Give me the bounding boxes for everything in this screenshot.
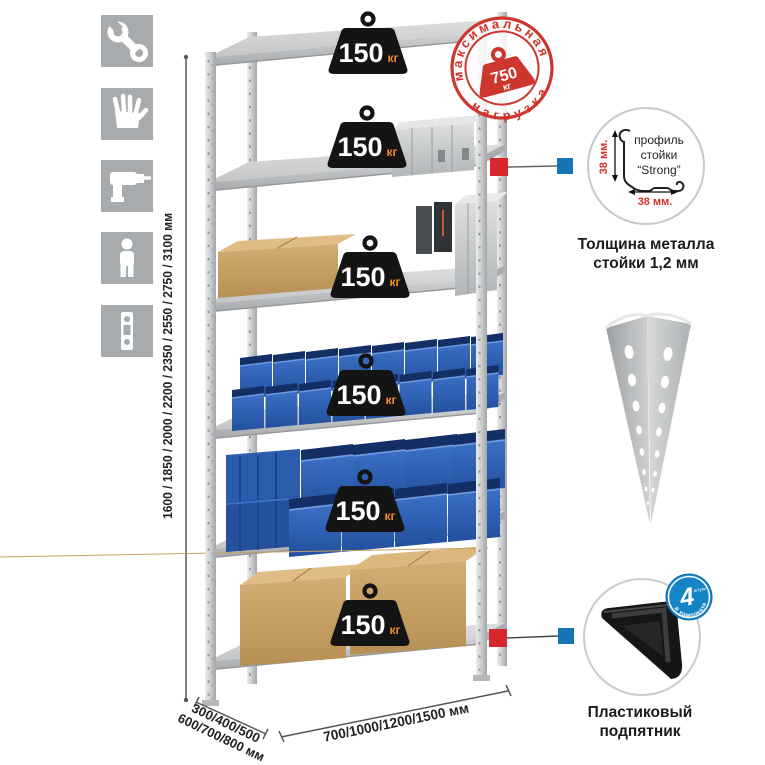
profile-title-2: стойки <box>641 148 678 162</box>
weight-badge-1 <box>329 14 408 75</box>
depth-dimension: 300/400/500 600/700/800 мм <box>176 697 274 765</box>
foot-callout-connector <box>489 628 574 647</box>
aluminium-case-small <box>392 115 482 177</box>
corner-post-image <box>606 314 691 524</box>
person-icon <box>101 232 153 284</box>
weight-badge-2 <box>328 108 407 169</box>
spirit-level-icon <box>101 305 153 357</box>
profile-title-3: “Strong” <box>637 163 680 177</box>
side-rails <box>211 41 251 666</box>
plastic-foot-callout: 4 штуки в комплекте <box>584 570 716 695</box>
width-dimension-label: 700/1000/1200/1500 мм <box>322 700 470 745</box>
product-infographic: 150 кг <box>0 0 765 765</box>
dark-cases-shelf3 <box>416 202 452 254</box>
height-dimension-label: 1600 / 1850 / 2000 / 2200 / 2350 / 2550 … <box>160 213 175 519</box>
profile-callout: 38 мм. 38 мм. профиль стойки “Strong” <box>588 108 704 224</box>
profile-title-1: профиль <box>634 133 684 147</box>
callout-blue-marker-top <box>557 158 573 174</box>
profile-callout-connector <box>490 158 573 176</box>
callout-red-marker-bottom <box>489 629 507 647</box>
foot-caption-line1: Пластиковый <box>588 704 693 721</box>
profile-horizontal-dim-label: 38 мм. <box>638 196 673 208</box>
wrench-icon <box>101 14 153 67</box>
callout-red-marker-top <box>490 158 508 176</box>
front-left-post <box>202 52 219 706</box>
weight-badge-3 <box>331 238 410 299</box>
drill-icon <box>101 160 153 212</box>
width-dimension: 700/1000/1200/1500 мм <box>279 685 511 745</box>
profile-caption-line1: Толщина металла <box>578 236 715 253</box>
blue-crates-stacked <box>226 449 300 552</box>
height-dimension: 1600 / 1850 / 2000 / 2200 / 2350 / 2550 … <box>160 55 188 702</box>
callout-blue-marker-bottom <box>558 628 574 644</box>
feature-icons-column <box>101 14 153 357</box>
foot-caption-line2: подпятник <box>599 723 680 740</box>
infographic-svg: 150 кг <box>0 0 765 765</box>
work-gloves-icon <box>101 88 153 140</box>
shelving-rack <box>0 12 508 706</box>
profile-vertical-dim-label: 38 мм. <box>598 140 610 175</box>
profile-caption-line2: стойки 1,2 мм <box>593 255 698 272</box>
